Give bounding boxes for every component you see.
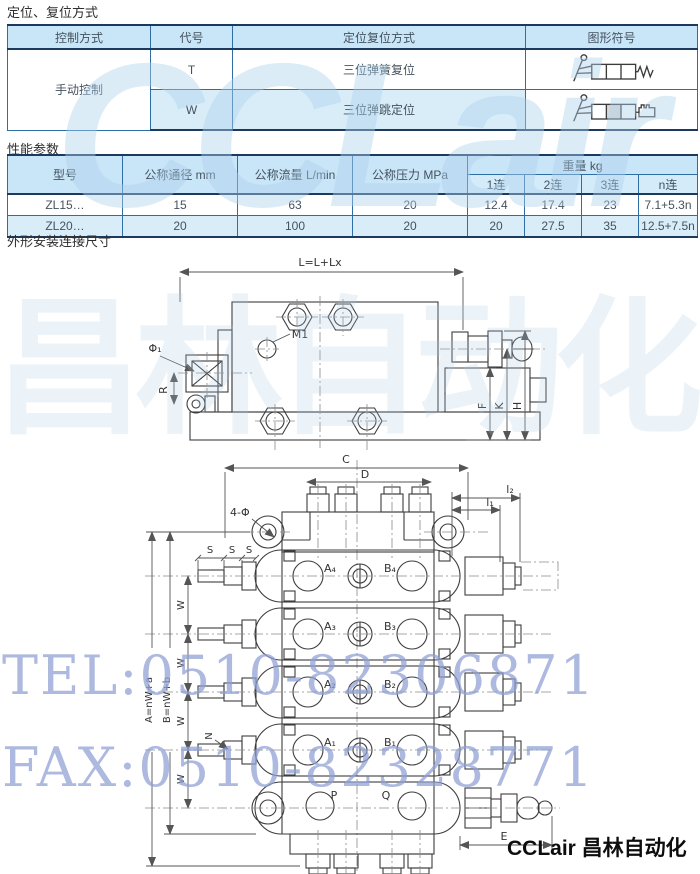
dim-label-k: K xyxy=(493,402,506,410)
cell-method-t: 三位弹簧复位 xyxy=(233,49,526,90)
dim-label-total-length: L=L+Lx xyxy=(298,256,342,269)
dim-label-n: N xyxy=(204,732,215,739)
cell-weight-3: 23 xyxy=(582,194,639,216)
port-label-a3: A₃ xyxy=(324,620,336,633)
cell-diameter: 20 xyxy=(123,216,238,238)
dim-label-four-phi: 4-Φ xyxy=(230,506,250,519)
dim-label-w: W xyxy=(176,716,187,726)
col-header-code: 代号 xyxy=(151,25,233,49)
cell-weight-2: 27.5 xyxy=(525,216,582,238)
cell-weight-1: 12.4 xyxy=(468,194,525,216)
side-view-drawing: M1 L=L+Lx xyxy=(148,256,548,452)
port-label-b3: B₃ xyxy=(384,620,396,633)
port-label-a1: A₁ xyxy=(324,736,336,749)
cell-model: ZL15… xyxy=(8,194,123,216)
cell-code-w: W xyxy=(151,90,233,131)
cell-weight-3: 35 xyxy=(582,216,639,238)
brand-footer: CCLair 昌林自动化 xyxy=(507,832,687,862)
table-header-row: 型号 公称通径 mm 公称流量 L/min 公称压力 MPa 重量 kg xyxy=(8,155,698,175)
dim-label-s: S xyxy=(207,545,213,556)
port-label-q: Q xyxy=(382,789,391,802)
dim-label-w: W xyxy=(176,774,187,784)
dim-label-s: S xyxy=(229,545,235,556)
section-title-dimensions: 外形安装连接尺寸 xyxy=(7,231,111,250)
cell-method-w: 三位弹跳定位 xyxy=(233,90,526,131)
dim-label-d: D xyxy=(361,468,369,481)
table-row: ZL15… 15 63 20 12.4 17.4 23 7.1+5.3n xyxy=(8,194,698,216)
dim-label-w: W xyxy=(176,658,187,668)
col-header-control-method: 控制方式 xyxy=(8,25,151,49)
technical-drawing: M1 L=L+Lx xyxy=(0,245,700,874)
port-label-p: P xyxy=(331,789,338,802)
top-view-drawing: C D l₂ l₁ 4-Φ xyxy=(144,453,560,874)
cell-weight-1: 20 xyxy=(468,216,525,238)
table-row: 手动控制 T 三位弹簧复位 xyxy=(8,49,698,90)
catalog-page: 定位、复位方式 控制方式 代号 定位复位方式 图形符号 手动控制 T 三位弹簧复… xyxy=(0,0,700,874)
dim-label-c: C xyxy=(342,453,350,466)
cell-control-method: 手动控制 xyxy=(8,49,151,130)
col-header-model: 型号 xyxy=(8,155,123,194)
col-header-flow: 公称流量 L/min xyxy=(238,155,353,194)
port-label-b1: B₁ xyxy=(384,736,396,749)
col-header-weight: 重量 kg xyxy=(468,155,698,175)
dim-label-m1: M1 xyxy=(292,328,309,341)
cell-pressure: 20 xyxy=(353,194,468,216)
cell-weight-n: 12.5+7.5n xyxy=(639,216,698,238)
dim-label-w: W xyxy=(176,600,187,610)
section-title-positioning: 定位、复位方式 xyxy=(7,2,98,21)
control-method-table: 控制方式 代号 定位复位方式 图形符号 手动控制 T 三位弹簧复位 xyxy=(7,24,698,131)
dim-label-s: S xyxy=(246,545,252,556)
port-label-a4: A₄ xyxy=(324,562,337,575)
dim-label-a-formula: A=nW+a xyxy=(144,677,155,723)
col-header-weight-n: n连 xyxy=(639,175,698,195)
col-header-reset-method: 定位复位方式 xyxy=(233,25,526,49)
performance-table: 型号 公称通径 mm 公称流量 L/min 公称压力 MPa 重量 kg 1连 … xyxy=(7,154,698,238)
cell-symbol-w xyxy=(526,90,698,131)
cell-weight-n: 7.1+5.3n xyxy=(639,194,698,216)
dim-label-b-formula: B=nW+b xyxy=(162,677,173,723)
col-header-weight-2: 2连 xyxy=(525,175,582,195)
lever-3pos-spring-return-symbol-icon xyxy=(532,52,692,88)
table-header-row: 控制方式 代号 定位复位方式 图形符号 xyxy=(8,25,698,49)
dim-label-phi: Φ₁ xyxy=(148,342,161,355)
col-header-diameter: 公称通径 mm xyxy=(123,155,238,194)
col-header-pressure: 公称压力 MPa xyxy=(353,155,468,194)
dim-label-h: H xyxy=(511,402,524,410)
col-header-weight-3: 3连 xyxy=(582,175,639,195)
port-label-b4: B₄ xyxy=(384,562,397,575)
cell-flow: 100 xyxy=(238,216,353,238)
dim-label-f: F xyxy=(476,403,489,409)
cell-diameter: 15 xyxy=(123,194,238,216)
cell-weight-2: 17.4 xyxy=(525,194,582,216)
col-header-symbol: 图形符号 xyxy=(526,25,698,49)
port-label-a2: A₂ xyxy=(324,678,336,691)
dim-label-r: R xyxy=(157,386,170,394)
lever-3pos-detent-symbol-icon xyxy=(532,92,692,128)
col-header-weight-1: 1连 xyxy=(468,175,525,195)
cell-symbol-t xyxy=(526,49,698,90)
dim-label-l2: l₂ xyxy=(506,483,513,496)
cell-pressure: 20 xyxy=(353,216,468,238)
port-label-b2: B₂ xyxy=(384,678,396,691)
dim-label-l1: l₁ xyxy=(486,496,493,509)
cell-code-t: T xyxy=(151,49,233,90)
cell-flow: 63 xyxy=(238,194,353,216)
